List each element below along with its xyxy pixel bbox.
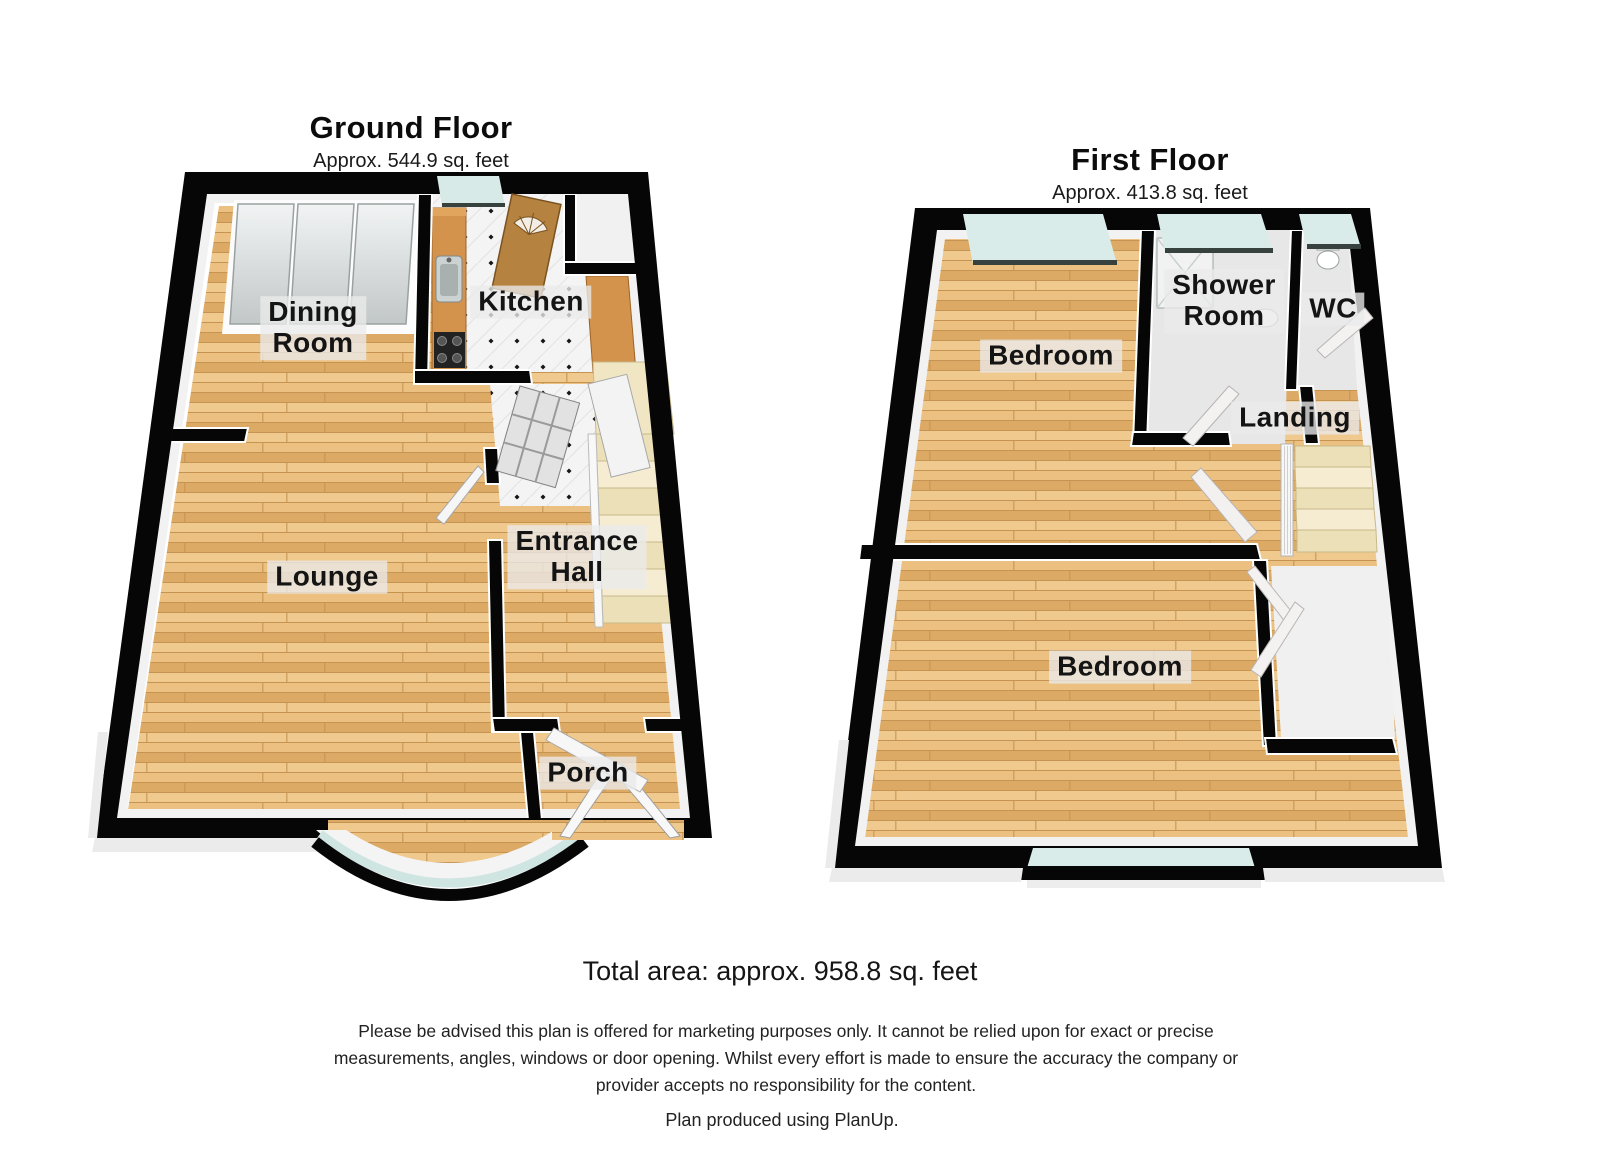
room-label-wc: WC [1301,293,1364,326]
room-label-shower-room: Shower Room [1164,269,1284,333]
rear-bedroom-window [1021,848,1265,888]
total-area-text: Total area: approx. 958.8 sq. feet [583,956,978,987]
room-label-porch: Porch [539,757,636,790]
first-floor-title: First Floor [1052,142,1248,178]
ground-floor-title: Ground Floor [310,110,513,146]
disclaimer-text: Please be advised this plan is offered f… [311,1018,1261,1099]
room-label-bedroom-1: Bedroom [980,340,1122,373]
first-floor-header: First Floor Approx. 413.8 sq. feet [1052,142,1248,205]
cupboard-floor [1271,566,1395,738]
wc-window [1299,214,1361,249]
room-label-kitchen: Kitchen [470,286,591,319]
bay-window [315,820,585,895]
kitchen-stove [434,332,465,368]
floorplan-page: Ground Floor Approx. 544.9 sq. feet [0,0,1600,1163]
kitchen-counter-right [586,276,636,372]
kitchen-sink [436,256,462,302]
ground-floor-header: Ground Floor Approx. 544.9 sq. feet [310,110,513,173]
planup-credit: Plan produced using PlanUp. [665,1110,898,1131]
room-label-lounge: Lounge [267,561,387,594]
room-label-bedroom-2: Bedroom [1049,651,1191,684]
room-label-dining: Dining Room [260,296,366,360]
shower-window [1157,214,1273,253]
room-label-landing: Landing [1231,402,1359,435]
room-label-entrance-hall: Entrance Hall [507,525,646,589]
kitchen-window [437,176,505,207]
ground-floor-area: Approx. 544.9 sq. feet [310,150,513,173]
bedroom-window [963,214,1117,265]
stair-railing [1281,444,1293,556]
